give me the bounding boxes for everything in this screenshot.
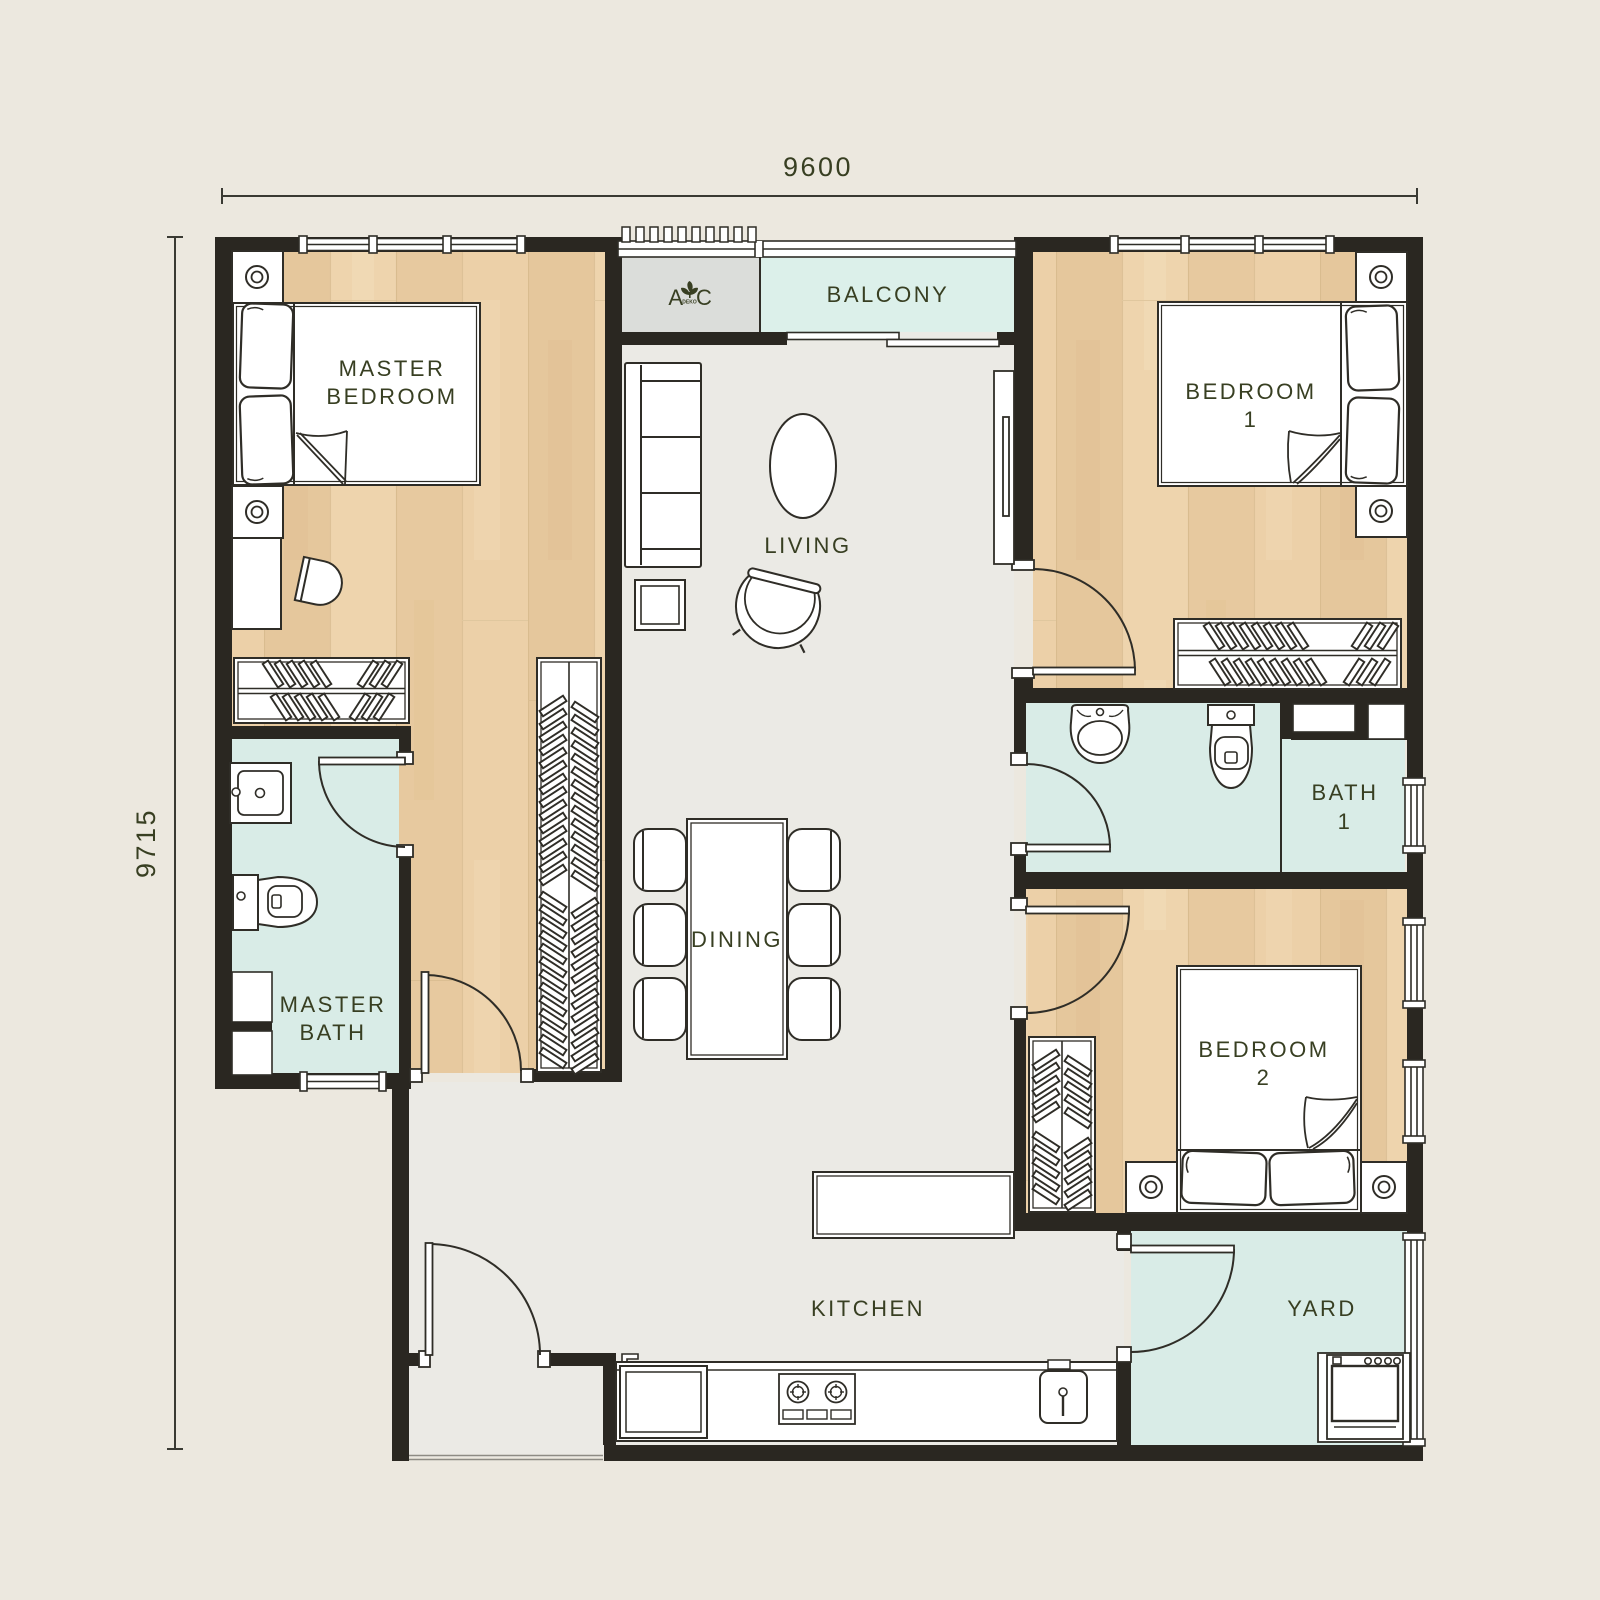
svg-text:KITCHEN: KITCHEN (811, 1296, 925, 1321)
svg-text:MASTER: MASTER (339, 356, 446, 381)
svg-text:9715: 9715 (131, 808, 161, 878)
svg-text:C: C (696, 285, 712, 310)
svg-text:BEDROOM: BEDROOM (1198, 1037, 1329, 1062)
svg-text:2: 2 (1257, 1065, 1272, 1090)
svg-text:BATH: BATH (1311, 780, 1378, 805)
svg-text:MASTER: MASTER (280, 992, 387, 1017)
svg-text:LIVING: LIVING (764, 533, 851, 558)
svg-text:1: 1 (1338, 809, 1353, 834)
svg-text:DINING: DINING (691, 927, 783, 952)
svg-text:9600: 9600 (783, 152, 853, 182)
svg-text:BALCONY: BALCONY (827, 282, 950, 307)
svg-text:YARD: YARD (1287, 1296, 1357, 1321)
svg-text:BEDROOM: BEDROOM (1185, 379, 1316, 404)
svg-text:BATH: BATH (299, 1020, 366, 1045)
svg-text:DEKO: DEKO (682, 300, 697, 306)
svg-text:BEDROOM: BEDROOM (326, 384, 457, 409)
svg-text:1: 1 (1244, 407, 1259, 432)
